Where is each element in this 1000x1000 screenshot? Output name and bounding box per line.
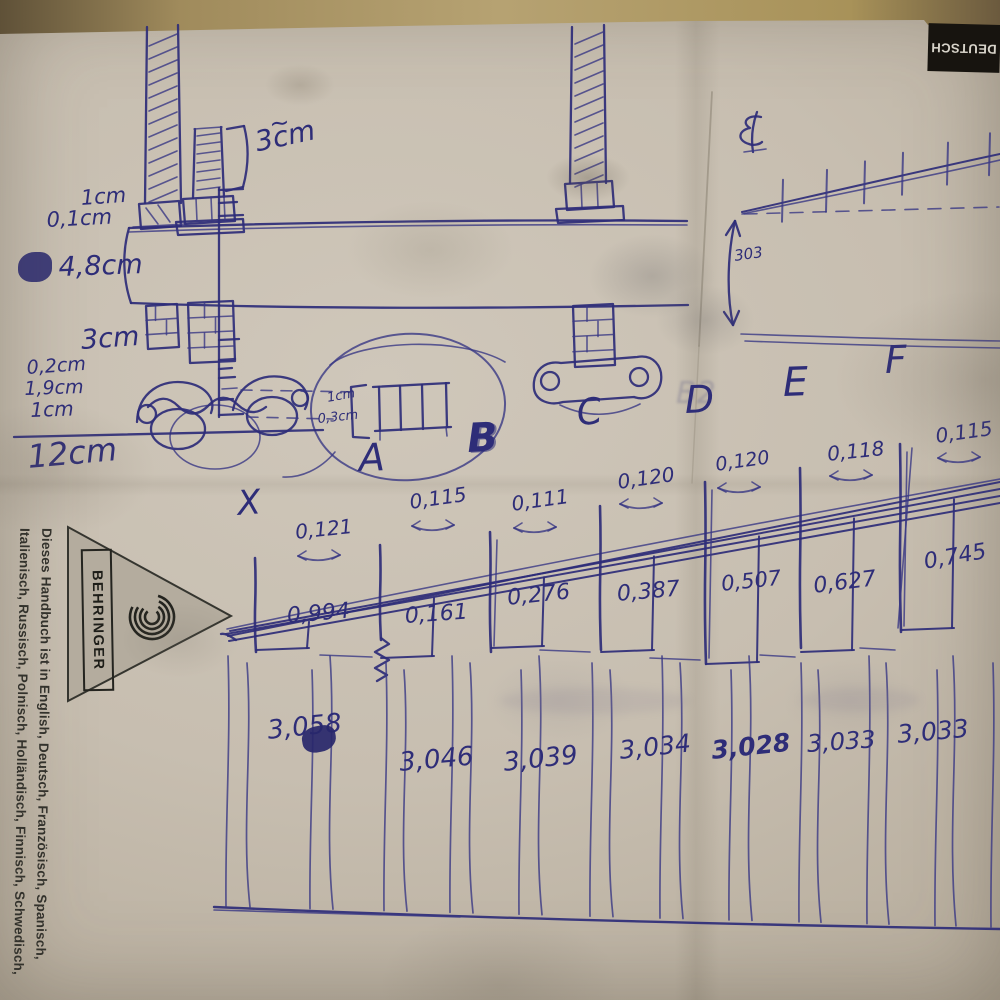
offset-a: 0,161 <box>404 600 469 629</box>
scribble-blot-left-margin <box>18 252 52 282</box>
bottom-e: 3,033 <box>806 725 877 758</box>
ceiling-mount-assembly-drawing <box>124 25 688 480</box>
show-through-smudge <box>500 688 690 714</box>
station-letter-x: X <box>236 482 262 524</box>
dim-0-2cm: 0,2cm <box>26 353 87 379</box>
photo-of-hand-drawn-sketch: DEUTSCH Dieses Handbuch ist in English, … <box>0 0 1000 1000</box>
station-letter-d: D <box>684 377 715 422</box>
dim-12cm: 12cm <box>26 430 118 476</box>
ink-sketch-layer <box>0 0 1000 1000</box>
show-through-smudge <box>800 688 920 712</box>
dim-4-8cm: 4,8cm <box>58 249 143 283</box>
deutsch-label: DEUTSCH <box>931 40 997 57</box>
dim-1cm-bottom: 1cm <box>30 396 74 421</box>
dim-3cm: 3cm <box>80 321 140 356</box>
behringer-wordmark: BEHRINGER <box>89 570 107 671</box>
station-letter-b: B <box>466 414 499 462</box>
deutsch-language-tab: DEUTSCH <box>927 23 1000 73</box>
station-letter-e: E <box>782 359 809 406</box>
station-letter-a: A <box>358 435 386 480</box>
station-letter-f: F <box>884 337 907 382</box>
behringer-wordmark-box: BEHRINGER <box>81 549 114 692</box>
dim-0-1cm: 0,1cm <box>46 205 113 232</box>
bottom-f: 3,033 <box>896 714 970 749</box>
